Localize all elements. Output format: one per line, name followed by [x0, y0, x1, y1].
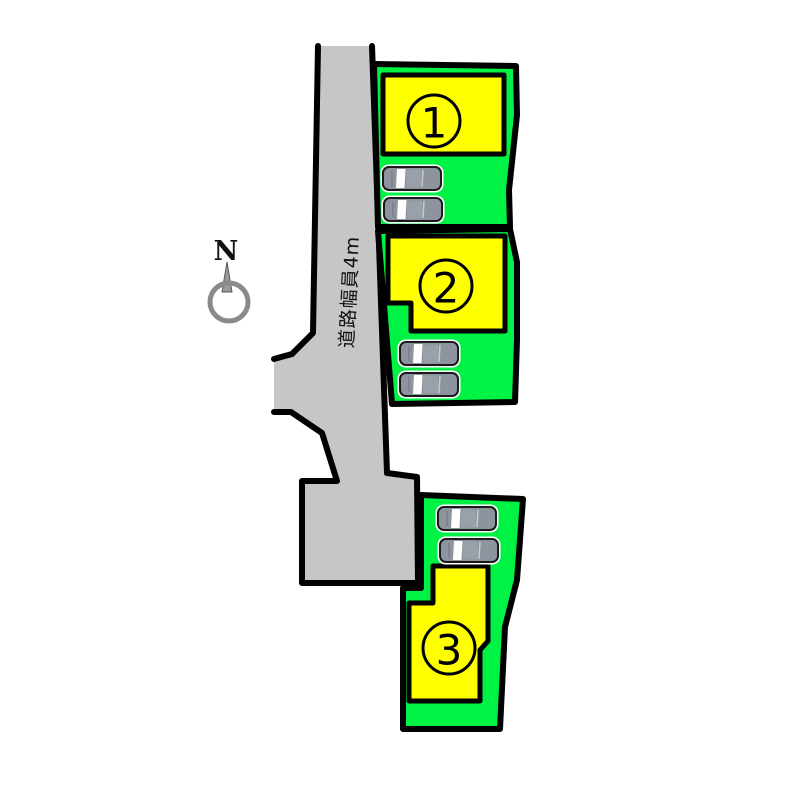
site-plan-svg: 道路幅員4m 1 2 3	[0, 0, 800, 800]
site-plan-canvas: 道路幅員4m 1 2 3	[0, 0, 800, 800]
car-icon	[438, 537, 501, 565]
car-icon	[398, 340, 461, 368]
car-icon	[381, 165, 444, 193]
lot-1-number: 1	[421, 99, 448, 148]
compass-north-label: N	[214, 236, 239, 267]
lot-2: 2	[378, 229, 517, 404]
car-icon	[382, 196, 445, 224]
car-icon	[436, 505, 499, 533]
lot-2-number: 2	[433, 264, 460, 313]
lot-3: 3	[403, 495, 523, 729]
lot-3-number: 3	[436, 626, 463, 675]
car-icon	[398, 371, 461, 399]
lot-1: 1	[374, 64, 517, 227]
north-compass: N	[210, 236, 248, 321]
